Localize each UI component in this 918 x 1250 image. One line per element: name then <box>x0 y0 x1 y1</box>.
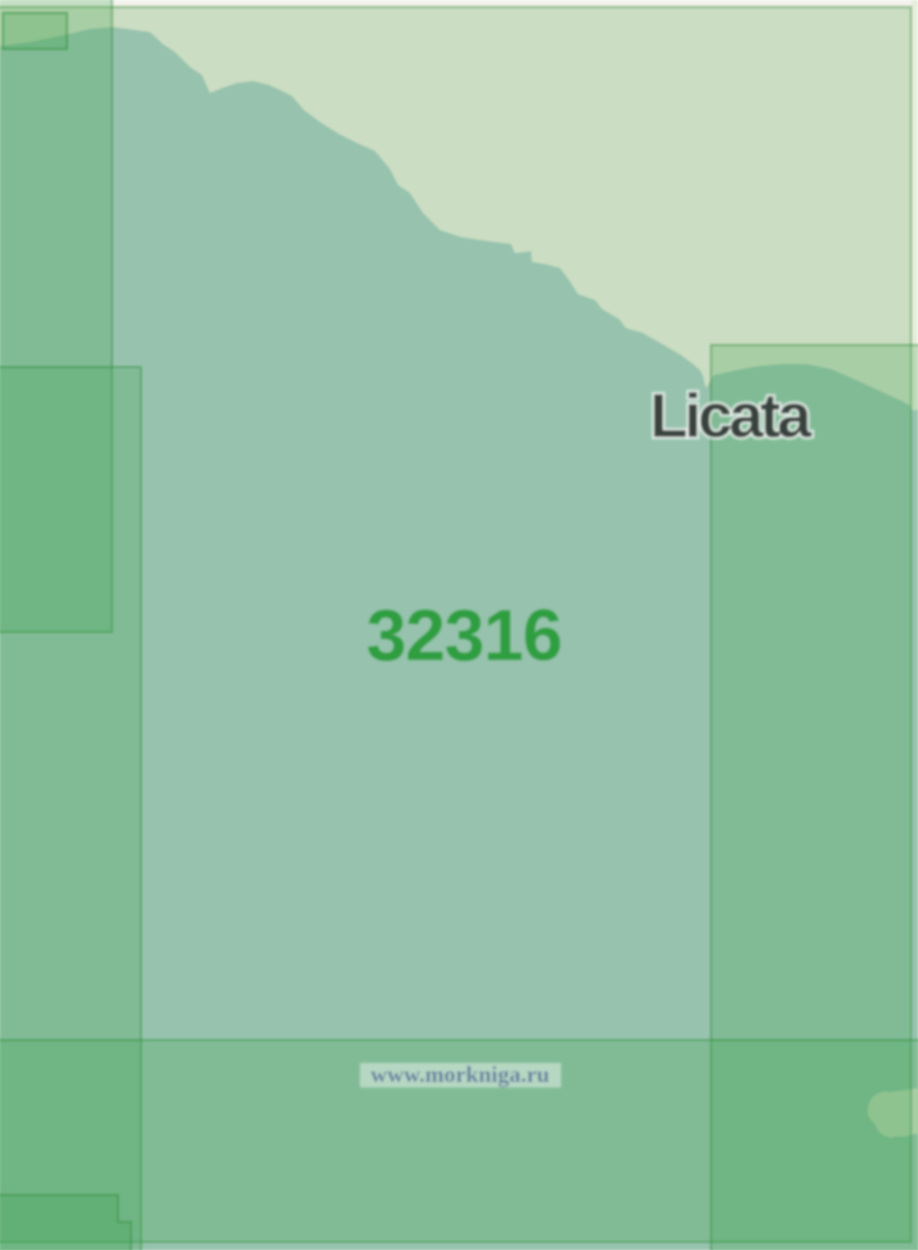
svg-text:Licata: Licata <box>650 382 812 451</box>
svg-text:32316: 32316 <box>366 596 561 676</box>
svg-text:www.morkniga.ru: www.morkniga.ru <box>371 1062 550 1087</box>
